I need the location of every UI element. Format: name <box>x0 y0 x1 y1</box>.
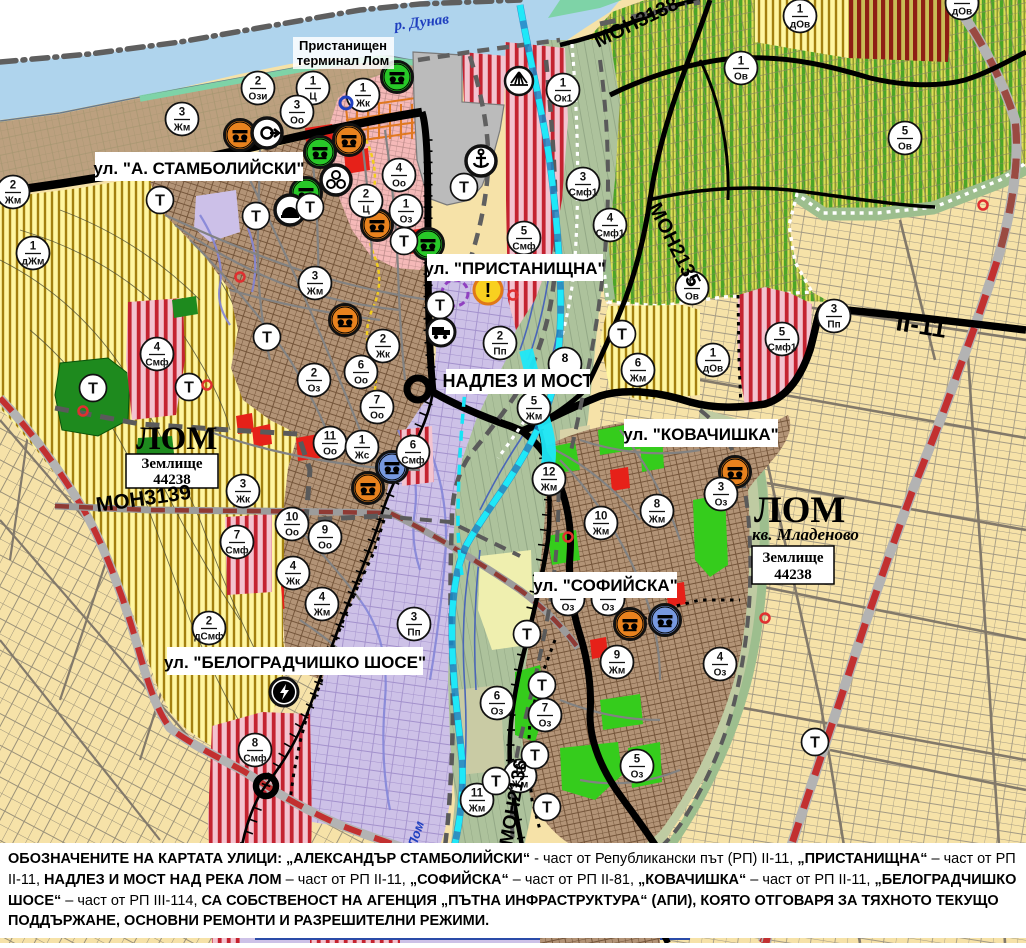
svg-text:Т: Т <box>491 774 501 791</box>
svg-text:5: 5 <box>531 396 538 408</box>
svg-text:1: 1 <box>310 76 317 88</box>
svg-text:Оо: Оо <box>392 179 406 190</box>
svg-text:Т: Т <box>88 381 98 398</box>
svg-text:7: 7 <box>374 395 380 407</box>
svg-text:2: 2 <box>255 76 261 88</box>
svg-text:Оз: Оз <box>602 603 615 614</box>
svg-text:дОв: дОв <box>703 364 723 375</box>
svg-text:Смф: Смф <box>512 241 535 253</box>
svg-text:Жм: Жм <box>313 608 330 619</box>
svg-text:Жк: Жк <box>355 99 371 110</box>
svg-text:3: 3 <box>240 479 246 491</box>
svg-text:4: 4 <box>154 342 161 354</box>
svg-text:Жк: Жк <box>235 495 251 506</box>
svg-text:2: 2 <box>311 368 317 380</box>
svg-text:1: 1 <box>738 56 745 68</box>
svg-text:12: 12 <box>543 467 556 479</box>
svg-text:3: 3 <box>294 100 300 112</box>
svg-text:ул. "СОФИЙСКА": ул. "СОФИЙСКА" <box>533 576 678 595</box>
svg-text:Жм: Жм <box>540 483 557 494</box>
svg-text:Оз: Оз <box>308 384 321 395</box>
svg-text:Ц: Ц <box>309 92 317 103</box>
svg-text:2: 2 <box>380 334 386 346</box>
svg-text:Ози: Ози <box>249 92 268 103</box>
svg-text:Смф1: Смф1 <box>768 342 797 354</box>
svg-text:Оо: Оо <box>285 528 299 539</box>
svg-text:Жм: Жм <box>173 123 190 134</box>
svg-text:!: ! <box>485 280 492 302</box>
svg-text:Землище: Землище <box>762 550 824 566</box>
svg-text:9: 9 <box>614 650 620 662</box>
svg-text:1: 1 <box>360 83 367 95</box>
svg-text:Оз: Оз <box>631 770 644 781</box>
svg-text:2: 2 <box>10 180 16 192</box>
svg-text:6: 6 <box>494 691 500 703</box>
svg-text:ул. "А. СТАМБОЛИЙСКИ": ул. "А. СТАМБОЛИЙСКИ" <box>93 159 304 178</box>
svg-text:Пристанищен: Пристанищен <box>299 38 387 53</box>
svg-text:Жм: Жм <box>306 287 323 298</box>
svg-text:Оз: Оз <box>714 668 727 679</box>
svg-text:ЛОМ: ЛОМ <box>136 421 217 457</box>
svg-text:6: 6 <box>635 358 641 370</box>
svg-text:Оз: Оз <box>539 719 552 730</box>
svg-text:Т: Т <box>251 209 261 226</box>
svg-text:1: 1 <box>30 241 37 253</box>
svg-text:Пп: Пп <box>493 347 506 358</box>
svg-text:3: 3 <box>718 482 724 494</box>
svg-text:Жк: Жк <box>285 577 301 588</box>
svg-text:5: 5 <box>634 754 641 766</box>
svg-text:кв. Младеново: кв. Младеново <box>752 525 859 544</box>
svg-text:4: 4 <box>717 652 724 664</box>
svg-text:Ов: Ов <box>898 142 912 153</box>
svg-text:9: 9 <box>322 525 328 537</box>
svg-text:Смф1: Смф1 <box>596 228 625 240</box>
svg-text:1: 1 <box>560 78 567 90</box>
svg-text:Смф: Смф <box>243 753 266 765</box>
svg-text:2: 2 <box>363 189 369 201</box>
svg-text:дОв: дОв <box>952 7 972 18</box>
svg-text:Смф: Смф <box>145 357 168 369</box>
svg-text:ул. "КОВАЧИШКА": ул. "КОВАЧИШКА" <box>623 425 779 444</box>
svg-text:Жм: Жм <box>629 374 646 385</box>
svg-text:ул. "ПРИСТАНИЩНА": ул. "ПРИСТАНИЩНА" <box>424 259 605 278</box>
svg-text:Жк: Жк <box>375 350 391 361</box>
svg-text:1: 1 <box>359 435 366 447</box>
svg-text:3: 3 <box>179 107 185 119</box>
svg-text:Т: Т <box>184 380 194 397</box>
svg-text:3: 3 <box>580 172 586 184</box>
svg-text:дСмф: дСмф <box>194 631 224 643</box>
svg-text:Т: Т <box>617 327 627 344</box>
svg-text:Т: Т <box>399 234 409 251</box>
svg-text:Смф: Смф <box>401 455 424 467</box>
svg-text:8: 8 <box>562 351 569 365</box>
svg-text:1: 1 <box>959 0 966 3</box>
svg-text:ул. "БЕЛОГРАДЧИШКО ШОСЕ": ул. "БЕЛОГРАДЧИШКО ШОСЕ" <box>164 653 426 672</box>
svg-text:7: 7 <box>234 530 240 542</box>
svg-text:8: 8 <box>252 738 259 750</box>
svg-text:5: 5 <box>902 126 909 138</box>
svg-text:Оо: Оо <box>354 376 368 387</box>
svg-text:Оз: Оз <box>491 707 504 718</box>
svg-text:11: 11 <box>324 431 337 443</box>
svg-text:Ов: Ов <box>685 292 699 303</box>
svg-text:1: 1 <box>710 348 717 360</box>
svg-text:Оо: Оо <box>323 447 337 458</box>
svg-text:Т: Т <box>155 193 165 210</box>
svg-text:1: 1 <box>797 4 804 16</box>
svg-text:2: 2 <box>497 331 503 343</box>
svg-text:Оз: Оз <box>562 603 575 614</box>
svg-text:6: 6 <box>358 360 364 372</box>
svg-text:Жс: Жс <box>354 451 370 462</box>
svg-text:Жм: Жм <box>592 527 609 538</box>
svg-text:Оо: Оо <box>318 541 332 552</box>
svg-text:1: 1 <box>403 199 410 211</box>
svg-text:Жм: Жм <box>525 412 542 423</box>
svg-text:4: 4 <box>607 213 614 225</box>
svg-text:Пп: Пп <box>827 320 840 331</box>
svg-text:Т: Т <box>522 627 532 644</box>
svg-text:Оз: Оз <box>400 215 413 226</box>
svg-text:Ов: Ов <box>734 72 748 83</box>
svg-text:дЖм: дЖм <box>22 257 45 268</box>
svg-text:Землище: Землище <box>141 456 203 472</box>
svg-text:Жм: Жм <box>4 196 21 207</box>
svg-text:3: 3 <box>831 304 837 316</box>
svg-text:Жм: Жм <box>648 515 665 526</box>
svg-text:Жм: Жм <box>608 666 625 677</box>
svg-text:Смф1: Смф1 <box>569 187 598 199</box>
svg-text:8: 8 <box>654 499 661 511</box>
svg-text:Пп: Пп <box>407 628 420 639</box>
svg-text:Ок1: Ок1 <box>554 94 573 105</box>
svg-text:Оо: Оо <box>370 411 384 422</box>
svg-text:Т: Т <box>537 678 547 695</box>
svg-text:11: 11 <box>471 788 484 800</box>
svg-text:Т: Т <box>810 735 820 752</box>
svg-text:5: 5 <box>779 327 786 339</box>
svg-text:НАДЛЕЗ И МОСТ: НАДЛЕЗ И МОСТ <box>443 371 594 391</box>
svg-text:Смф: Смф <box>225 545 248 557</box>
svg-text:терминал Лом: терминал Лом <box>297 53 389 68</box>
svg-text:3: 3 <box>312 271 318 283</box>
svg-text:6: 6 <box>410 440 416 452</box>
svg-text:10: 10 <box>595 511 608 523</box>
svg-text:4: 4 <box>396 163 403 175</box>
svg-text:Оо: Оо <box>290 116 304 127</box>
svg-text:дОв: дОв <box>790 20 810 31</box>
svg-text:Т: Т <box>262 330 272 347</box>
svg-text:Т: Т <box>305 200 315 217</box>
svg-text:Ц: Ц <box>362 205 370 216</box>
svg-text:4: 4 <box>290 561 297 573</box>
svg-text:Оз: Оз <box>715 498 728 509</box>
svg-text:2: 2 <box>206 616 212 628</box>
svg-text:10: 10 <box>286 512 299 524</box>
svg-text:Т: Т <box>542 800 552 817</box>
svg-text:4: 4 <box>319 592 326 604</box>
svg-text:5: 5 <box>521 226 528 238</box>
svg-text:Т: Т <box>435 298 445 315</box>
svg-text:Т: Т <box>459 180 469 197</box>
svg-text:Жм: Жм <box>468 804 485 815</box>
svg-text:44238: 44238 <box>774 567 812 583</box>
svg-text:3: 3 <box>411 612 417 624</box>
svg-text:7: 7 <box>542 703 548 715</box>
